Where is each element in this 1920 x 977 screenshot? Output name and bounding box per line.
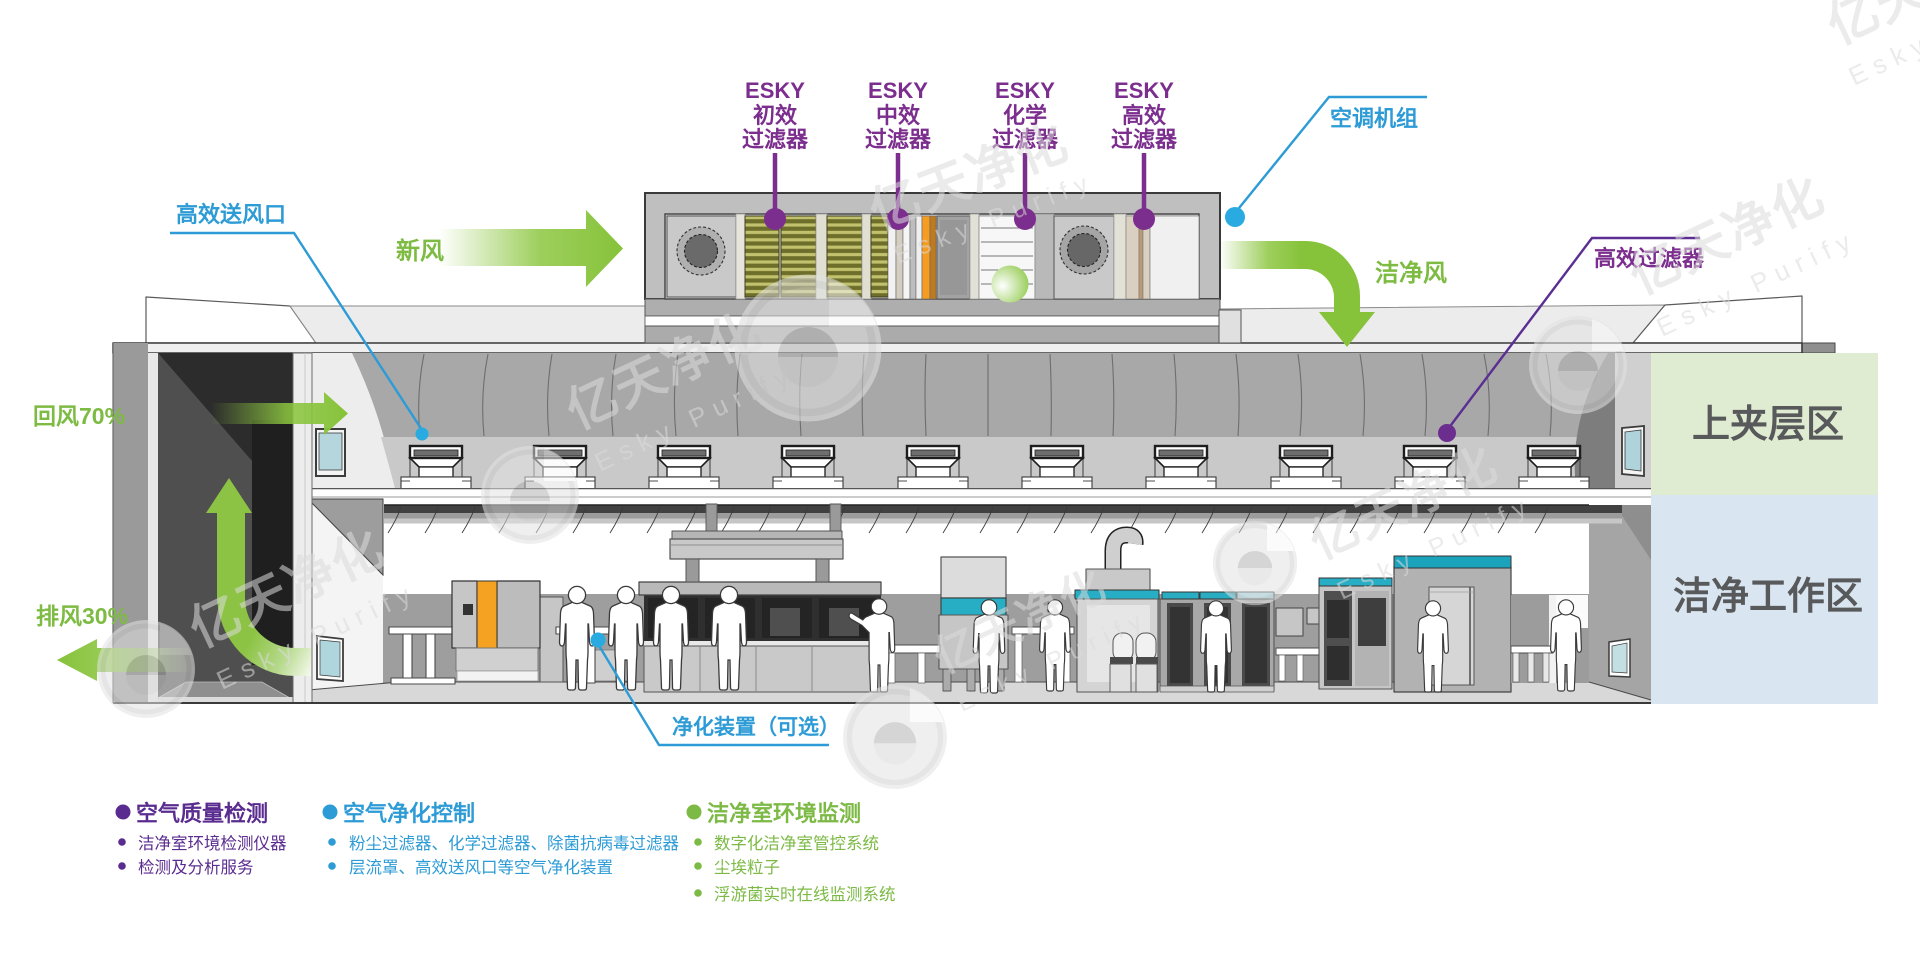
- svg-text:过滤器: 过滤器: [742, 127, 809, 152]
- svg-text:层流罩、高效送风口等空气净化装置: 层流罩、高效送风口等空气净化装置: [349, 858, 613, 877]
- svg-text:过滤器: 过滤器: [865, 127, 932, 152]
- svg-text:初效: 初效: [753, 103, 797, 128]
- svg-text:洁净工作区: 洁净工作区: [1673, 576, 1863, 618]
- svg-text:洁净室环境监测: 洁净室环境监测: [707, 801, 861, 826]
- svg-text:回风70%: 回风70%: [33, 403, 125, 429]
- svg-text:高效: 高效: [1122, 103, 1166, 128]
- svg-text:空气质量检测: 空气质量检测: [136, 801, 268, 826]
- svg-text:空气净化控制: 空气净化控制: [343, 801, 475, 826]
- svg-text:排风30%: 排风30%: [36, 603, 128, 629]
- svg-text:洁净室环境检测仪器: 洁净室环境检测仪器: [138, 834, 287, 853]
- svg-text:数字化洁净室管控系统: 数字化洁净室管控系统: [714, 834, 879, 853]
- svg-text:ESKY: ESKY: [1114, 78, 1174, 103]
- svg-text:粉尘过滤器、化学过滤器、除菌抗病毒过滤器: 粉尘过滤器、化学过滤器、除菌抗病毒过滤器: [349, 834, 680, 853]
- svg-text:新风: 新风: [396, 237, 444, 265]
- svg-text:上夹层区: 上夹层区: [1692, 404, 1844, 446]
- svg-text:空调机组: 空调机组: [1330, 106, 1418, 131]
- svg-text:净化装置（可选）: 净化装置（可选）: [672, 715, 840, 739]
- svg-text:浮游菌实时在线监测系统: 浮游菌实时在线监测系统: [714, 885, 896, 904]
- svg-text:中效: 中效: [876, 103, 920, 128]
- svg-text:尘埃粒子: 尘埃粒子: [714, 858, 780, 877]
- svg-text:ESKY: ESKY: [868, 78, 928, 103]
- svg-text:过滤器: 过滤器: [1111, 127, 1178, 152]
- svg-text:检测及分析服务: 检测及分析服务: [138, 858, 254, 877]
- svg-text:ESKY: ESKY: [995, 78, 1055, 103]
- svg-text:ESKY: ESKY: [745, 78, 805, 103]
- svg-text:洁净风: 洁净风: [1375, 259, 1447, 287]
- svg-text:高效送风口: 高效送风口: [176, 202, 286, 227]
